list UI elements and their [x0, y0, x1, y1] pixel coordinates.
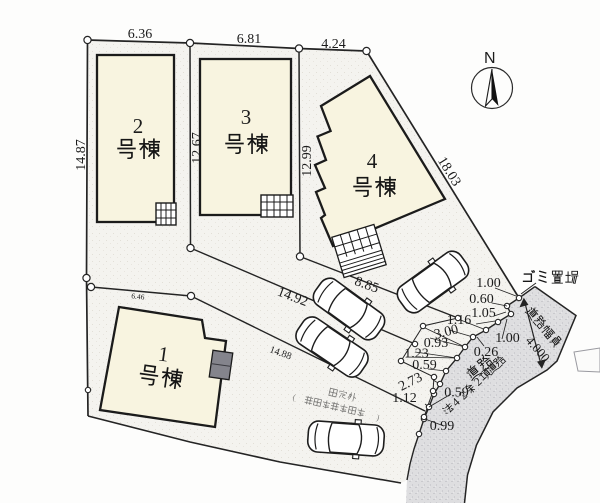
svg-text:6.36: 6.36 — [128, 27, 153, 42]
svg-text:2: 2 — [133, 114, 144, 138]
svg-text:0.26: 0.26 — [474, 345, 499, 360]
svg-text:3: 3 — [241, 105, 252, 129]
svg-text:12.67: 12.67 — [190, 132, 205, 164]
svg-text:1.05: 1.05 — [471, 306, 496, 321]
svg-text:0.99: 0.99 — [430, 419, 455, 434]
svg-text:6.81: 6.81 — [237, 32, 262, 47]
svg-text:4: 4 — [367, 149, 378, 173]
svg-text:0.60: 0.60 — [469, 292, 494, 307]
svg-text:6.46: 6.46 — [131, 291, 145, 301]
svg-text:1.00: 1.00 — [495, 331, 520, 346]
svg-text:N: N — [484, 50, 496, 67]
svg-text:12.99: 12.99 — [300, 145, 315, 177]
svg-text:14.87: 14.87 — [74, 139, 89, 171]
svg-text:4.24: 4.24 — [321, 37, 346, 52]
